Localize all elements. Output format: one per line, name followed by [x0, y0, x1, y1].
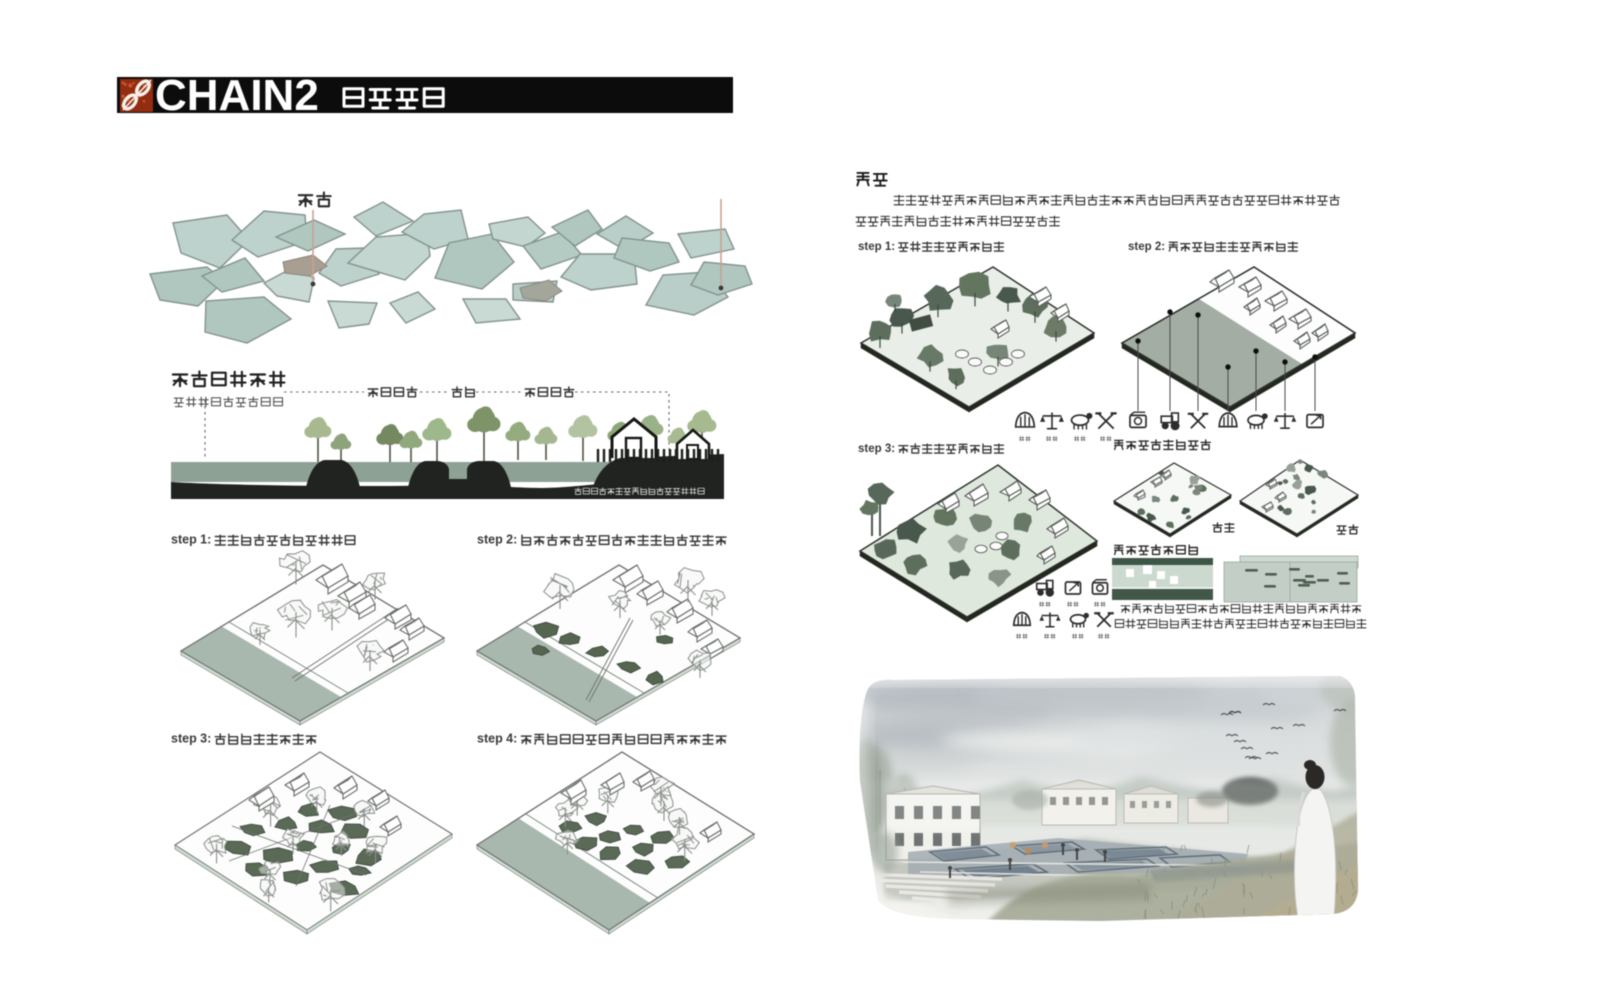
svg-text:step 2:: step 2: — [477, 533, 517, 547]
svg-text:step 1:: step 1: — [858, 241, 895, 253]
svg-text:step 3:: step 3: — [858, 443, 895, 455]
svg-text:step 1:: step 1: — [171, 533, 211, 547]
svg-text:step 2:: step 2: — [1128, 241, 1165, 253]
svg-text:step 4:: step 4: — [477, 732, 517, 746]
svg-text:step 3:: step 3: — [171, 732, 211, 746]
svg-text:CHAIN2: CHAIN2 — [155, 71, 319, 120]
